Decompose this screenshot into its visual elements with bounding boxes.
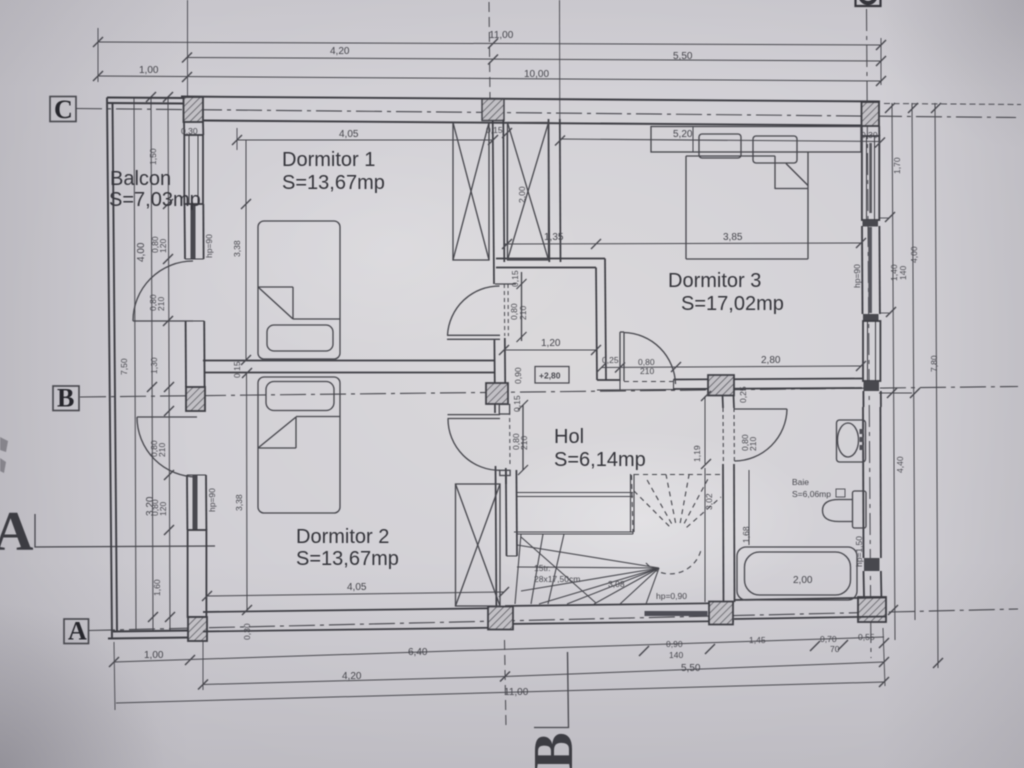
svg-text:4,00: 4,00 xyxy=(909,246,919,263)
svg-text:0,90: 0,90 xyxy=(513,367,523,384)
svg-text:3,02: 3,02 xyxy=(704,493,714,510)
svg-text:1,19: 1,19 xyxy=(692,445,702,462)
svg-text:B: B xyxy=(523,732,585,768)
svg-text:7,50: 7,50 xyxy=(119,358,129,375)
svg-text:0,25: 0,25 xyxy=(602,355,619,365)
svg-text:3,38: 3,38 xyxy=(234,494,244,511)
svg-text:5,20: 5,20 xyxy=(673,129,693,140)
svg-text:Dormitor 2: Dormitor 2 xyxy=(296,526,389,548)
svg-text:120: 120 xyxy=(158,502,168,516)
svg-text:11,00: 11,00 xyxy=(504,687,529,698)
svg-text:0,55: 0,55 xyxy=(858,632,875,642)
svg-text:3,08: 3,08 xyxy=(608,579,625,589)
svg-text:B: B xyxy=(57,384,74,413)
svg-text:Baie: Baie xyxy=(792,477,809,487)
svg-text:1,00: 1,00 xyxy=(144,650,164,661)
svg-text:0,25: 0,25 xyxy=(738,386,748,403)
svg-text:S=7,03mp: S=7,03mp xyxy=(109,189,201,211)
svg-text:1,35: 1,35 xyxy=(544,232,564,243)
svg-text:S=17,02mp: S=17,02mp xyxy=(681,293,784,315)
svg-text:S=13,67mp: S=13,67mp xyxy=(282,172,385,194)
svg-text:70: 70 xyxy=(830,644,840,654)
svg-text:S=13,67mp: S=13,67mp xyxy=(296,548,399,570)
svg-text:1,00: 1,00 xyxy=(139,65,159,76)
svg-text:0,15: 0,15 xyxy=(232,361,242,378)
svg-text:0,90: 0,90 xyxy=(666,639,683,649)
svg-text:+2,80: +2,80 xyxy=(539,371,561,381)
svg-text:0,30: 0,30 xyxy=(861,130,878,140)
svg-text:0,15: 0,15 xyxy=(486,125,503,135)
svg-text:4,40: 4,40 xyxy=(895,456,905,473)
svg-text:2,80: 2,80 xyxy=(761,355,781,366)
svg-text:210: 210 xyxy=(519,436,529,450)
svg-text:1,68: 1,68 xyxy=(741,526,751,543)
svg-text:A: A xyxy=(68,617,87,646)
svg-text:28x17,50cm: 28x17,50cm xyxy=(534,574,580,584)
svg-text:3,38: 3,38 xyxy=(232,240,242,257)
svg-text:Hol: Hol xyxy=(554,426,584,448)
svg-text:3,85: 3,85 xyxy=(723,232,743,243)
svg-text:hp=0,90: hp=0,90 xyxy=(656,591,687,601)
svg-text:210: 210 xyxy=(518,306,528,320)
svg-text:1,45: 1,45 xyxy=(749,635,766,645)
svg-text:hp=90: hp=90 xyxy=(852,264,862,288)
svg-text:S=6,06mp: S=6,06mp xyxy=(792,489,831,499)
svg-text:4,20: 4,20 xyxy=(342,671,362,682)
svg-text:120: 120 xyxy=(158,239,168,253)
svg-text:Balcon: Balcon xyxy=(110,168,171,190)
svg-text:7,80: 7,80 xyxy=(929,355,939,372)
svg-text:4,05: 4,05 xyxy=(339,129,359,140)
svg-text:4,05: 4,05 xyxy=(347,582,367,593)
svg-text:hp=90: hp=90 xyxy=(204,234,214,258)
svg-text:11,00: 11,00 xyxy=(489,30,514,41)
svg-text:0,30: 0,30 xyxy=(181,126,198,136)
svg-text:Dormitor 3: Dormitor 3 xyxy=(668,270,761,292)
svg-text:6,40: 6,40 xyxy=(408,647,428,658)
svg-text:1,60: 1,60 xyxy=(152,579,162,596)
svg-text:210: 210 xyxy=(157,443,167,457)
svg-text:2,00: 2,00 xyxy=(517,186,527,203)
svg-text:210: 210 xyxy=(640,366,654,376)
svg-text:4,20: 4,20 xyxy=(330,46,350,57)
svg-text:0,30: 0,30 xyxy=(242,623,252,640)
svg-text:1,70: 1,70 xyxy=(892,157,902,174)
svg-text:2,00: 2,00 xyxy=(793,575,813,586)
svg-text:5,50: 5,50 xyxy=(673,51,693,62)
svg-text:1,30: 1,30 xyxy=(149,357,159,374)
svg-text:0,70: 0,70 xyxy=(820,634,837,644)
svg-text:A: A xyxy=(0,501,34,563)
svg-text:Dormitor 1: Dormitor 1 xyxy=(282,149,375,171)
svg-text:210: 210 xyxy=(156,297,166,311)
svg-text:0,15: 0,15 xyxy=(512,395,522,412)
svg-text:140: 140 xyxy=(669,650,683,660)
svg-text:4,00: 4,00 xyxy=(136,242,147,262)
svg-text:1,50: 1,50 xyxy=(148,148,158,165)
svg-text:5,50: 5,50 xyxy=(681,663,701,674)
svg-text:C: C xyxy=(54,95,73,124)
svg-text:S=6,14mp: S=6,14mp xyxy=(554,449,646,471)
svg-text:15tr.: 15tr. xyxy=(534,563,551,573)
svg-text:0,15: 0,15 xyxy=(510,270,520,287)
svg-text:1,20: 1,20 xyxy=(541,338,561,349)
svg-text:hp=1,50: hp=1,50 xyxy=(854,536,864,567)
svg-text:210: 210 xyxy=(748,437,758,451)
svg-text:140: 140 xyxy=(898,266,908,280)
svg-text:hp=90: hp=90 xyxy=(207,488,217,512)
svg-text:10,00: 10,00 xyxy=(524,69,549,80)
